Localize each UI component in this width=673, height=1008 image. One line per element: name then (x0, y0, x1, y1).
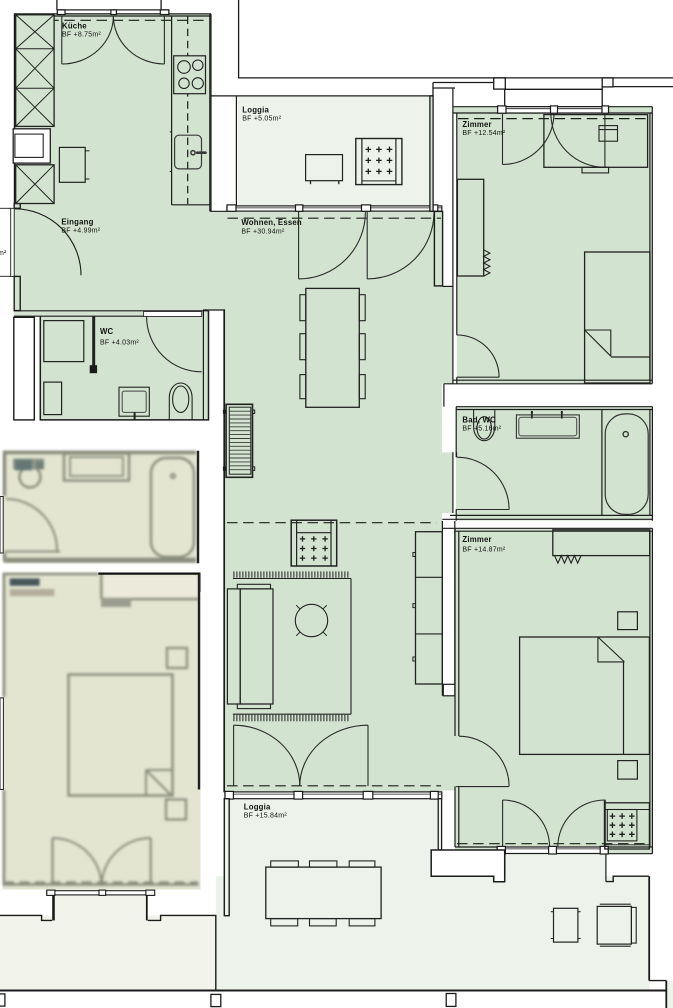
svg-text:BF +4.03m²: BF +4.03m² (100, 340, 139, 347)
svg-text:WC: WC (100, 327, 114, 336)
svg-text:Küche: Küche (62, 22, 87, 31)
svg-text:Wohnen, Essen: Wohnen, Essen (241, 218, 302, 227)
svg-text:Bad, WC: Bad, WC (462, 416, 496, 425)
svg-text:Loggia: Loggia (244, 803, 271, 812)
svg-text:Loggia: Loggia (242, 105, 269, 114)
svg-text:m²: m² (0, 250, 7, 257)
svg-text:BF +8.75m²: BF +8.75m² (62, 32, 101, 39)
svg-text:BF +12.54m²: BF +12.54m² (462, 130, 506, 137)
svg-text:BF +30.94m²: BF +30.94m² (241, 228, 285, 235)
svg-text:BF +15.84m²: BF +15.84m² (244, 812, 288, 819)
svg-text:BF +5.16m²: BF +5.16m² (462, 426, 501, 433)
svg-text:Eingang: Eingang (61, 218, 93, 227)
svg-text:BF +4.99m²: BF +4.99m² (61, 228, 100, 235)
svg-text:Zimmer: Zimmer (462, 120, 491, 129)
svg-text:BF +5.05m²: BF +5.05m² (242, 116, 281, 123)
svg-text:Zimmer: Zimmer (462, 535, 491, 544)
svg-text:BF +14.87m²: BF +14.87m² (462, 547, 506, 554)
